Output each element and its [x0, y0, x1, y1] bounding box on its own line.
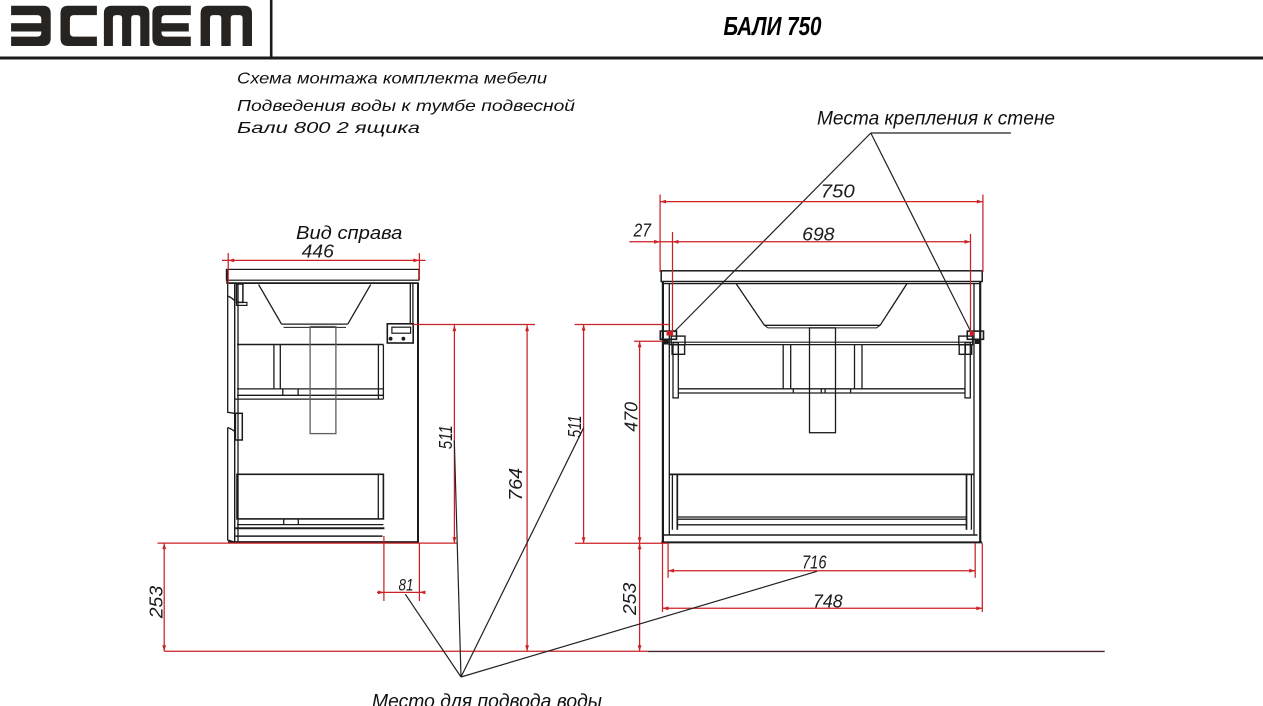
svg-text:Вид справа: Вид справа: [296, 223, 402, 243]
svg-text:253: 253: [620, 583, 640, 616]
svg-text:81: 81: [399, 576, 414, 595]
svg-text:Подведения воды к тумбе по: Подведения воды к тумбе подвесной: [237, 98, 575, 115]
svg-text:748: 748: [813, 592, 843, 612]
svg-text:Место для подвода воды: Место для подвода воды: [372, 691, 602, 706]
svg-text:27: 27: [633, 221, 652, 241]
svg-text:511: 511: [436, 425, 456, 449]
svg-text:Места крепления к стене: Места крепления к стене: [817, 109, 1055, 130]
svg-text:БАЛИ 750: БАЛИ 750: [724, 11, 822, 41]
svg-text:750: 750: [821, 181, 855, 201]
svg-text:253: 253: [146, 586, 166, 619]
svg-text:Бали 800 2 ящика: Бали 800 2 ящика: [237, 120, 420, 137]
svg-text:764: 764: [506, 468, 526, 501]
svg-text:511: 511: [565, 416, 585, 438]
svg-text:716: 716: [802, 553, 827, 573]
svg-text:698: 698: [802, 224, 834, 244]
svg-text:470: 470: [621, 402, 641, 432]
svg-text:446: 446: [302, 242, 335, 262]
svg-text:Схема монтажа комплекта меб: Схема монтажа комплекта мебели: [237, 71, 547, 88]
